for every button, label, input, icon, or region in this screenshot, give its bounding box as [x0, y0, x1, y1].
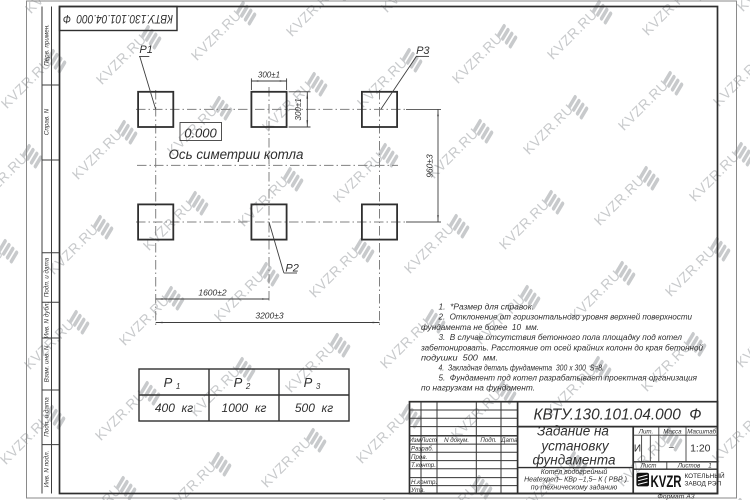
svg-text:Лист: Лист: [640, 462, 657, 469]
svg-text:Формат А3: Формат А3: [657, 494, 694, 500]
svg-text:Дата: Дата: [500, 437, 518, 444]
svg-text:400 кг: 400 кг: [155, 401, 193, 415]
svg-text:Листов: Листов: [677, 462, 701, 469]
svg-text:фундамента: фундамента: [533, 452, 616, 467]
svg-text:Подп. и дата: Подп. и дата: [43, 257, 51, 297]
svg-text:300±1: 300±1: [294, 98, 303, 120]
svg-text:1. *Размер для справок.: 1. *Размер для справок.: [439, 302, 535, 311]
svg-text:960±3: 960±3: [425, 154, 435, 178]
svg-text:P 1: P 1: [164, 375, 181, 391]
svg-text:Лит.: Лит.: [638, 429, 654, 436]
svg-text:Масса: Масса: [663, 429, 682, 436]
svg-text:P1: P1: [139, 44, 152, 56]
svg-text:5. Фундамент под котел разраб: 5. Фундамент под котел разрабатывает про…: [439, 373, 698, 382]
svg-text:3200±3: 3200±3: [255, 311, 284, 321]
svg-text:забетонировать. Расстояние от: забетонировать. Расстояние от осей крайн…: [420, 343, 703, 352]
svg-text:Справ. N: Справ. N: [44, 108, 51, 135]
svg-text:2. Отклонение от горизонтальн: 2. Отклонение от горизонтального уровня …: [438, 313, 693, 322]
svg-text:1: 1: [708, 462, 711, 469]
svg-text:И: И: [634, 444, 641, 455]
svg-text:КВТУ.130.101.04.000 Ф: КВТУ.130.101.04.000 Ф: [534, 407, 702, 424]
svg-text:Ось симетрии котла: Ось симетрии котла: [169, 147, 304, 162]
svg-text:P 2: P 2: [234, 375, 251, 391]
svg-text:Взам. инв. N: Взам. инв. N: [44, 345, 51, 382]
svg-text:Т.контр.: Т.контр.: [411, 462, 436, 469]
svg-text:Подп. и дата: Подп. и дата: [43, 397, 51, 437]
svg-text:Подп.: Подп.: [480, 437, 496, 444]
svg-text:КВТУ.130.101.04.000 Ф: КВТУ.130.101.04.000 Ф: [63, 12, 173, 24]
svg-text:KVZR: KVZR: [651, 472, 682, 491]
svg-text:Лист: Лист: [420, 437, 437, 444]
svg-text:по нагрузкам на фундамент.: по нагрузкам на фундамент.: [421, 384, 535, 393]
svg-text:P3: P3: [416, 45, 430, 57]
svg-text:Инв. N подл.: Инв. N подл.: [43, 451, 51, 488]
svg-text:Утв.: Утв.: [410, 487, 425, 494]
svg-text:установку: установку: [540, 439, 609, 454]
svg-text:1000 кг: 1000 кг: [222, 401, 267, 415]
svg-text:4. Закладная деталь фундамент: 4. Закладная деталь фундамента 300 x 300…: [439, 363, 605, 372]
svg-text:Н.контр.: Н.контр.: [411, 479, 437, 486]
svg-text:Heatexpert– КВр –1,5– К ( РВР: Heatexpert– КВр –1,5– К ( РВР ): [524, 477, 627, 484]
svg-text:500 кг: 500 кг: [295, 401, 333, 415]
svg-text:ЗАВОД РЭП: ЗАВОД РЭП: [685, 481, 722, 488]
svg-text:0.000: 0.000: [184, 126, 217, 141]
svg-text:1600±2: 1600±2: [198, 287, 227, 297]
svg-text:P 3: P 3: [304, 375, 321, 391]
svg-text:Изм: Изм: [409, 437, 421, 444]
svg-text:Задание на: Задание на: [537, 424, 609, 439]
svg-text:по техническому заданию: по техническому заданию: [531, 484, 618, 492]
svg-text:КОТЕЛЬНЫЙ: КОТЕЛЬНЫЙ: [685, 471, 725, 480]
svg-text:Перв. примен.: Перв. примен.: [44, 24, 51, 66]
svg-text:фундамента не более 10 мм.: фундамента не более 10 мм.: [421, 323, 539, 332]
svg-text:N докум.: N докум.: [444, 437, 469, 444]
svg-text:Пров.: Пров.: [411, 454, 427, 461]
svg-text:1:20: 1:20: [690, 443, 711, 455]
svg-text:Инв. N дубл.: Инв. N дубл.: [43, 302, 51, 338]
svg-text:Разраб.: Разраб.: [411, 446, 433, 453]
svg-text:–: –: [669, 442, 674, 452]
svg-text:подушки 500 мм.: подушки 500 мм.: [421, 354, 498, 363]
svg-text:300±1: 300±1: [258, 70, 280, 79]
svg-text:P2: P2: [285, 263, 298, 275]
svg-text:3. В случае отсутствия бетонн: 3. В случае отсутствия бетонного пола пл…: [439, 333, 683, 342]
svg-text:Котел водогрейный: Котел водогрейный: [541, 468, 608, 476]
svg-text:Масштаб: Масштаб: [687, 429, 716, 436]
